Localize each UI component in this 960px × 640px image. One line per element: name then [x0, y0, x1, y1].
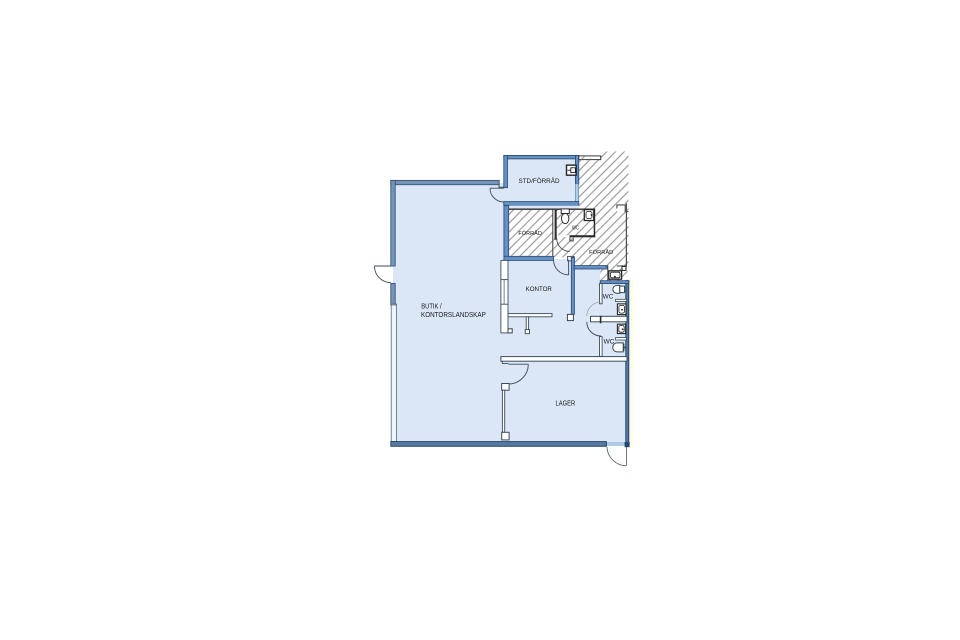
svg-text:FÖRRÅD: FÖRRÅD	[518, 230, 542, 237]
svg-text:KONTOR: KONTOR	[526, 286, 552, 293]
svg-text:KONTORSLANDSKAP: KONTORSLANDSKAP	[421, 310, 486, 319]
svg-text:WC: WC	[572, 226, 579, 232]
svg-text:WC: WC	[603, 294, 614, 301]
svg-text:WC: WC	[604, 338, 615, 345]
svg-text:FÖRRÅD: FÖRRÅD	[589, 249, 613, 256]
svg-text:STD/FÖRRÅD: STD/FÖRRÅD	[519, 178, 561, 185]
svg-text:LAGER: LAGER	[556, 400, 576, 407]
